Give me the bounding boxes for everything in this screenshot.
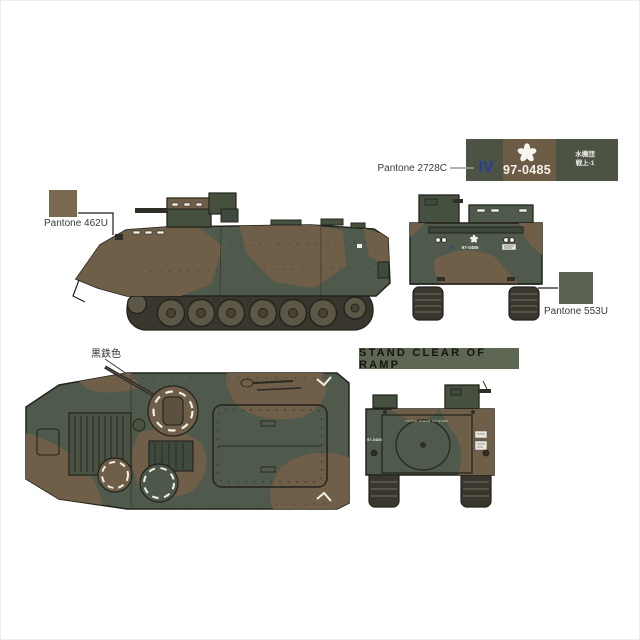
side-mg-barrel (135, 208, 168, 213)
barrel-color-label: 黒鉄色 (91, 345, 121, 360)
painting-guide-canvas: IV 97-0485 水機団 戦上-1 Pantone 2728C Panton… (0, 0, 640, 640)
jgsdf-star-icon (517, 143, 537, 163)
front-gun-stub (453, 199, 463, 203)
front-hinge-strip (429, 227, 523, 233)
front-registration-marking: 97-0485 (462, 245, 479, 250)
top-vent (133, 419, 145, 431)
front-view-drawing: IV 97-0485 (407, 193, 545, 321)
side-stern-box (378, 262, 389, 278)
rear-turret (445, 381, 491, 409)
top-view-drawing (21, 363, 355, 523)
side-view-drawing (71, 184, 399, 332)
rear-view-drawing: STAND CLEAR OF RAMP 97-0485 (361, 379, 499, 515)
decal-unit-line1: 水機団 (562, 150, 608, 159)
side-periscopes (133, 231, 164, 234)
rear-stowage-box (373, 395, 397, 408)
rear-ramp-warning-text: STAND CLEAR OF RAMP (406, 419, 449, 423)
decal-unit-line2: 戦上-1 (562, 159, 608, 168)
pantone-553u-swatch (559, 272, 593, 304)
side-headlight (115, 234, 123, 240)
rear-registration-marking: 97-0485 (367, 437, 382, 442)
decal-unit-text: 水機団 戦上-1 (562, 150, 608, 168)
front-engine-intake (469, 205, 533, 223)
bow-plane (73, 280, 85, 302)
decal-registration-number: 97-0485 (498, 163, 556, 177)
registration-decal-strip: IV 97-0485 水機団 戦上-1 (466, 139, 618, 181)
front-tracks (413, 287, 539, 320)
pantone-2728c-label: Pantone 2728C (359, 163, 447, 175)
front-unit-plate (502, 244, 516, 250)
top-turret-ring (148, 386, 198, 436)
side-turret (135, 193, 238, 227)
pantone-553u-label: Pantone 553U (543, 306, 609, 318)
stand-clear-banner: STAND CLEAR OF RAMP (359, 348, 519, 369)
front-roman-marking: IV (450, 245, 454, 250)
side-unit-mark (357, 244, 362, 248)
